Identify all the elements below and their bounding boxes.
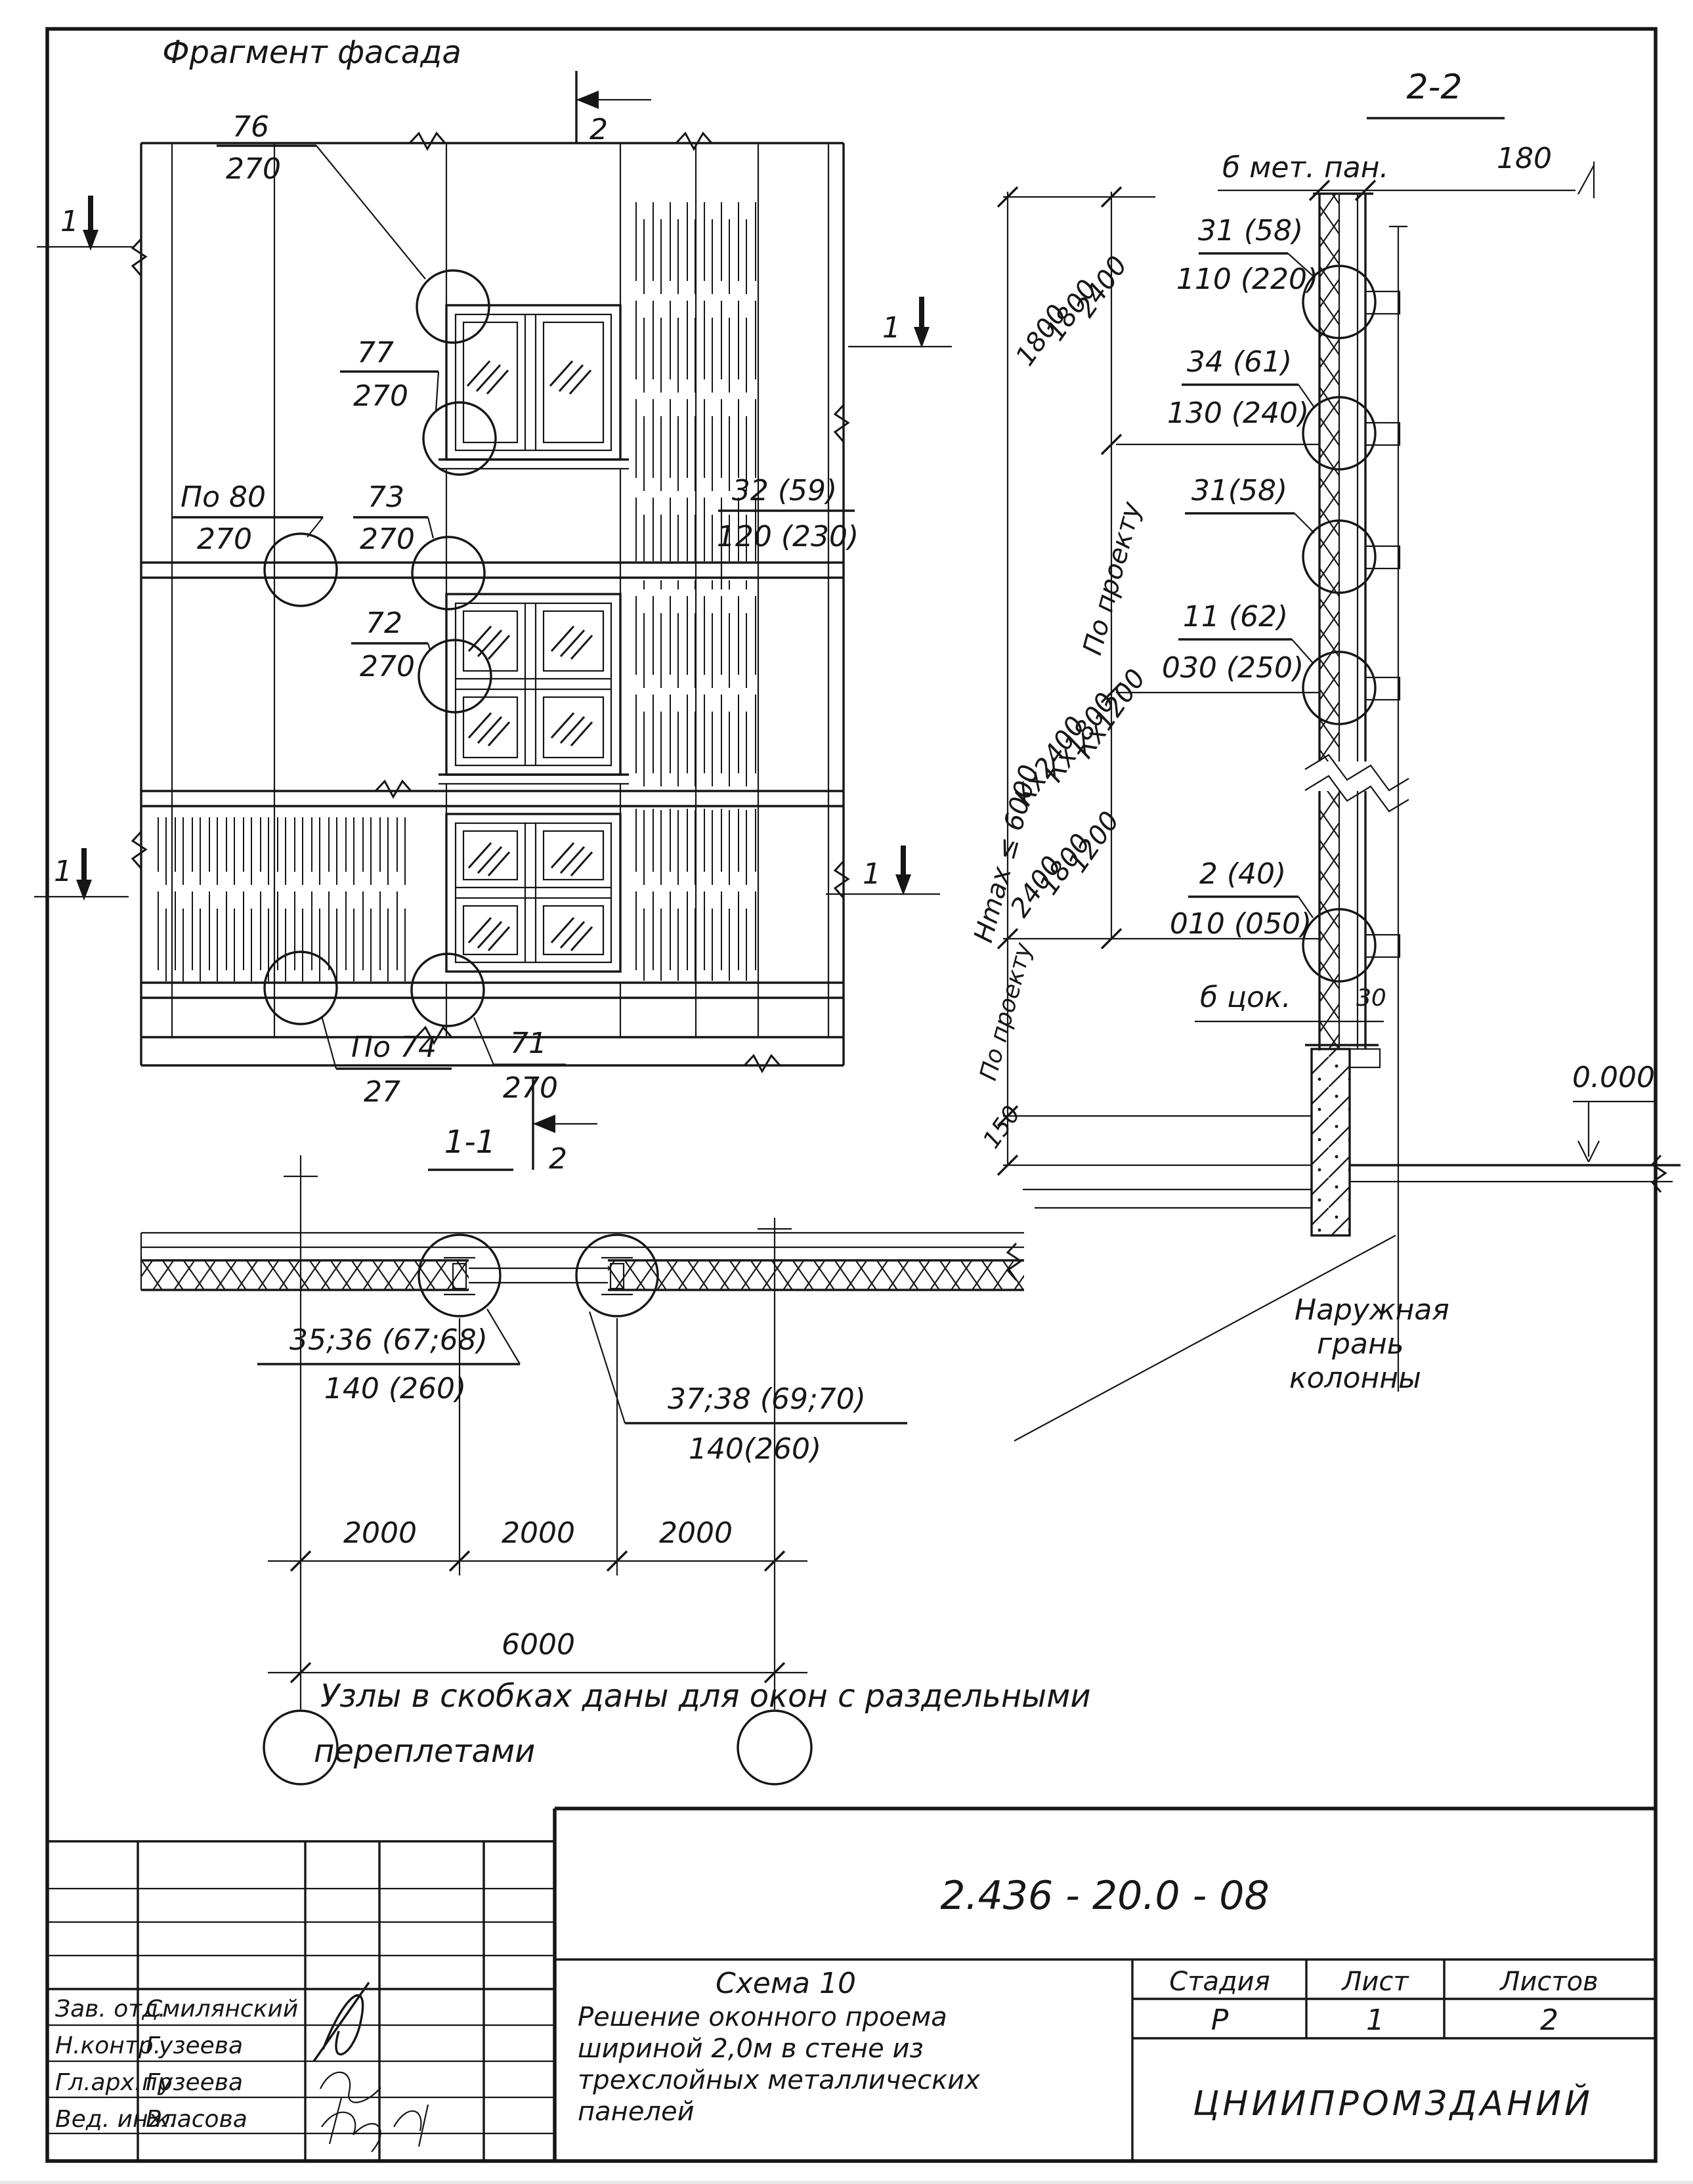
callout-3738-top: 37;38 (69;70) xyxy=(668,1382,866,1416)
break-icon xyxy=(133,239,146,276)
wall-insulation-hatch xyxy=(1319,194,1339,761)
plan-window-gap xyxy=(469,1255,608,1293)
panel-hatch xyxy=(629,580,758,789)
stage-value: Р xyxy=(1211,2003,1229,2037)
sheet-label: Лист xyxy=(1340,1967,1409,1997)
joint-bracket xyxy=(1365,291,1400,314)
callout-3738-leader xyxy=(589,1312,625,1423)
glazing-icon xyxy=(469,713,509,746)
window2-pane xyxy=(463,697,517,758)
detail-circle-71 xyxy=(412,954,484,1026)
dim-2000-2: 2000 xyxy=(502,1516,575,1550)
callout-3536-bot: 140 (260) xyxy=(324,1372,466,1405)
section1-right-bot-label: 1 xyxy=(863,857,881,891)
callout-3738-bot: 140(260) xyxy=(689,1432,821,1466)
section2-bot-arrow-icon xyxy=(533,1115,555,1133)
name-0: Смилянский xyxy=(146,1996,298,2023)
callout-74-bot: 27 xyxy=(364,1075,400,1109)
break-icon xyxy=(744,1056,780,1071)
scheme-title: Схема 10 xyxy=(716,1967,856,2000)
callout-11-top: 11 (62) xyxy=(1183,600,1288,633)
callout-34-bot: 130 (240) xyxy=(1167,396,1309,430)
callout-2-top: 2 (40) xyxy=(1199,857,1286,891)
doc-number: 2.436 - 20.0 - 08 xyxy=(940,1873,1269,1919)
section2-bot-label: 2 xyxy=(549,1142,567,1176)
joint-bracket xyxy=(1365,935,1400,957)
signature-scribble-3 xyxy=(322,2098,381,2152)
name-1: Гузеева xyxy=(146,2032,243,2059)
column-note-3: колонны xyxy=(1289,1361,1421,1395)
callout-77-bot: 270 xyxy=(353,379,408,413)
section1-left-bot-arrow-icon xyxy=(76,880,92,901)
window3-frame xyxy=(446,814,620,972)
glazing-icon xyxy=(551,713,592,746)
detail-circle-73 xyxy=(412,537,484,609)
section1-left-top-label: 1 xyxy=(60,205,79,238)
scheme-desc-4: панелей xyxy=(578,2097,695,2127)
signature-scribble-4 xyxy=(394,2105,428,2147)
callout-76-top: 76 xyxy=(232,110,269,144)
window1-inner xyxy=(456,314,611,450)
glazing-icon xyxy=(551,843,592,876)
glazing-icon xyxy=(469,843,509,876)
dim-6000: 6000 xyxy=(502,1628,575,1661)
scheme-desc-3: трехслойных металлических xyxy=(578,2065,980,2095)
glazing-icon xyxy=(469,918,509,951)
section1-left-bot-label: 1 xyxy=(54,855,72,888)
glazing-icon xyxy=(469,626,509,659)
joint-bracket xyxy=(1365,677,1400,700)
sheets-value: 2 xyxy=(1540,2003,1558,2037)
plinth-bracket xyxy=(1350,1049,1380,1067)
break-icon xyxy=(410,133,445,149)
break-icon xyxy=(676,133,712,149)
scheme-desc-2: шириной 2,0м в стене из xyxy=(578,2034,924,2064)
callout-73-leader xyxy=(428,517,433,538)
callout-76-leader xyxy=(316,146,425,279)
section1-right-top-label: 1 xyxy=(882,311,901,345)
window3-inner xyxy=(456,823,611,962)
callout-71-leader xyxy=(474,1017,494,1065)
callout-77-leader xyxy=(436,372,439,412)
callout-31a-top: 31 (58) xyxy=(1198,214,1303,247)
dim-2000-1: 2000 xyxy=(343,1516,417,1550)
joint-bracket xyxy=(1365,423,1400,445)
zero-level-label: 0.000 xyxy=(1572,1061,1655,1094)
window1-frame xyxy=(446,305,620,460)
callout-32-bot: 120 (230) xyxy=(717,520,859,553)
window2-pane xyxy=(463,611,517,671)
stage-label: Стадия xyxy=(1169,1967,1270,1997)
break-icon xyxy=(835,861,848,898)
zero-level-arrow-icon xyxy=(1578,1141,1589,1162)
callout-80-bot: 270 xyxy=(197,523,252,556)
callout-32-top: 32 (59) xyxy=(732,474,837,507)
detail-circle-80 xyxy=(265,534,337,606)
detail-circle-76 xyxy=(417,270,489,343)
sheet-value: 1 xyxy=(1366,2003,1384,2037)
window2-pane xyxy=(544,697,603,758)
note-line1: Узлы в скобках даны для окон с раздельны… xyxy=(320,1678,1091,1715)
detail-circle-77 xyxy=(423,402,496,475)
section1-right-bot-arrow-icon xyxy=(895,874,911,895)
name-2: Гузеева xyxy=(146,2069,243,2096)
callout-73-top: 73 xyxy=(368,481,404,514)
callout-73-bot: 270 xyxy=(360,523,415,556)
sheets-label: Листов xyxy=(1499,1967,1598,1997)
section1-right-top-arrow-icon xyxy=(914,327,930,348)
glazing-icon xyxy=(550,361,591,394)
plinth-block xyxy=(1312,1049,1350,1235)
dim-2000-3: 2000 xyxy=(659,1516,733,1550)
window2-frame xyxy=(446,594,620,775)
callout-72-bot: 270 xyxy=(360,650,415,683)
callout-74-top: По 74 xyxy=(351,1031,437,1064)
drawing-sheet: Фрагмент фасада 2 xyxy=(0,0,1693,2181)
column-note-1: Наружная xyxy=(1295,1293,1449,1327)
callout-74-leader xyxy=(322,1016,336,1069)
panel-hatch xyxy=(629,809,758,981)
facade-title: Фрагмент фасада xyxy=(162,34,461,71)
technical-drawing: Фрагмент фасада 2 xyxy=(0,0,1693,2181)
dim-po-proektu2: По проекту xyxy=(975,939,1037,1083)
callout-3536-leader xyxy=(487,1309,520,1364)
callout-76-bot: 270 xyxy=(226,152,281,186)
callout-71-top: 71 xyxy=(510,1027,547,1060)
callout-80-top: По 80 xyxy=(181,481,266,514)
scheme-desc-1: Решение оконного проема xyxy=(578,2002,947,2032)
callout-80-leader xyxy=(307,517,323,537)
zero-level-arrow-icon2 xyxy=(1589,1141,1599,1162)
glazing-icon xyxy=(467,361,508,394)
plinth-label: б цок. xyxy=(1200,981,1291,1014)
callout-72-leader xyxy=(428,643,430,650)
dim-po-proektu: По проекту xyxy=(1077,498,1147,658)
panel-width-label: 180 xyxy=(1497,142,1552,175)
break-icon xyxy=(835,405,848,442)
wall-insulation-hatch2 xyxy=(1319,791,1339,1049)
note-line2: переплетами xyxy=(314,1733,535,1770)
glazing-icon xyxy=(551,918,592,951)
signature-scribble-1 xyxy=(314,1982,369,2061)
plinth-offset: 30 xyxy=(1356,985,1386,1012)
column-mark-circle xyxy=(738,1711,811,1784)
panel-label: б мет. пан. xyxy=(1222,151,1388,184)
plan-title: 1-1 xyxy=(444,1124,496,1161)
org-name: ЦНИИПРОМЗДАНИЙ xyxy=(1193,2084,1593,2124)
break-icon xyxy=(133,832,146,868)
callout-2-bot: 010 (050) xyxy=(1170,907,1312,941)
glazing-icon xyxy=(551,626,592,659)
section1-left-top-arrow-icon xyxy=(83,230,98,251)
joint-bracket xyxy=(1365,546,1400,568)
dim-hmax: Hmax ≤ 6000 xyxy=(968,761,1044,945)
callout-34-top: 34 (61) xyxy=(1187,345,1292,379)
callout-11-bot: 030 (250) xyxy=(1162,651,1304,685)
callout-31a-bot: 110 (220) xyxy=(1176,263,1318,296)
section-title: 2-2 xyxy=(1407,68,1463,107)
break-icon xyxy=(375,781,411,797)
callout-71-bot: 270 xyxy=(503,1071,558,1105)
dim-150: 150 xyxy=(978,1101,1026,1153)
callout-31b-top: 31(58) xyxy=(1191,474,1287,507)
name-3: Власова xyxy=(146,2106,247,2133)
callout-3536-top: 35;36 (67;68) xyxy=(289,1323,488,1357)
callout-31b-leader xyxy=(1295,513,1314,533)
section2-top-label: 2 xyxy=(589,113,608,146)
role-1: Н.контр. xyxy=(55,2032,161,2059)
callout-77-top: 77 xyxy=(357,336,394,370)
column-note-2: грань xyxy=(1317,1327,1404,1361)
section2-top-arrow-icon xyxy=(576,91,599,109)
level-flag-tick xyxy=(1578,165,1594,194)
callout-72-top: 72 xyxy=(366,607,402,640)
